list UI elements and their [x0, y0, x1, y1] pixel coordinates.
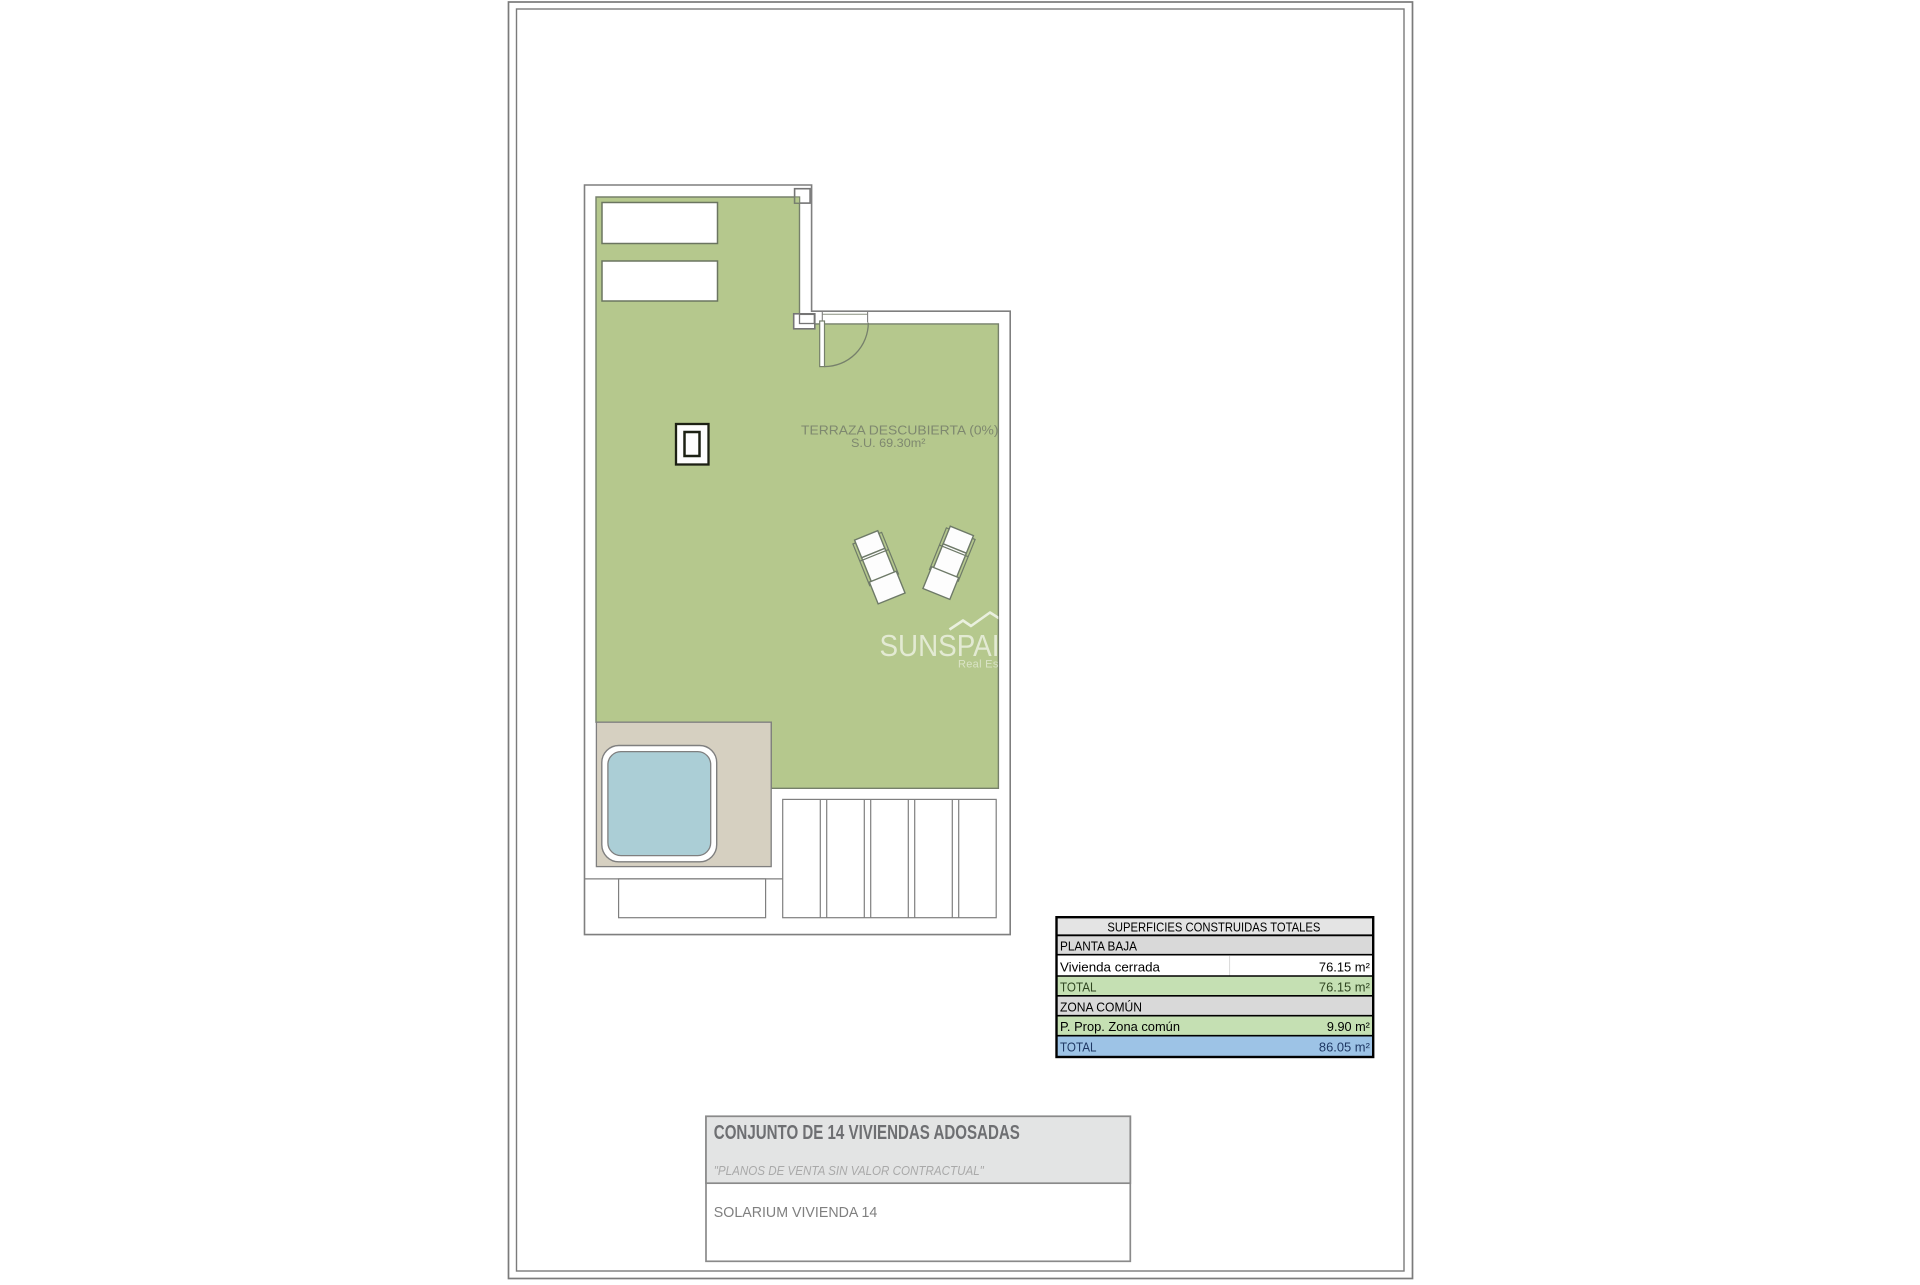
- svg-text:76.15 m²: 76.15 m²: [1319, 981, 1370, 995]
- svg-text:ZONA COMÚN: ZONA COMÚN: [1060, 1000, 1142, 1015]
- svg-text:CONJUNTO DE 14 VIVIENDAS ADOSA: CONJUNTO DE 14 VIVIENDAS ADOSADAS: [714, 1122, 1020, 1144]
- svg-text:"PLANOS DE VENTA SIN VALOR CON: "PLANOS DE VENTA SIN VALOR CONTRACTUAL": [714, 1164, 985, 1178]
- svg-text:76.15 m²: 76.15 m²: [1319, 960, 1370, 974]
- svg-text:SOLARIUM VIVIENDA 14: SOLARIUM VIVIENDA 14: [714, 1204, 878, 1221]
- svg-text:TOTAL: TOTAL: [1060, 981, 1097, 995]
- svg-text:S.U. 69.30m²: S.U. 69.30m²: [851, 436, 926, 450]
- svg-text:86.05 m²: 86.05 m²: [1319, 1041, 1370, 1055]
- svg-text:Vivienda cerrada: Vivienda cerrada: [1060, 960, 1160, 974]
- svg-text:9.90 m²: 9.90 m²: [1327, 1020, 1370, 1034]
- svg-text:P. Prop. Zona común: P. Prop. Zona común: [1060, 1020, 1180, 1034]
- svg-text:PLANTA BAJA: PLANTA BAJA: [1060, 940, 1138, 954]
- svg-text:TOTAL: TOTAL: [1060, 1041, 1097, 1055]
- svg-text:SUPERFICIES CONSTRUIDAS TOTALE: SUPERFICIES CONSTRUIDAS TOTALES: [1107, 919, 1320, 934]
